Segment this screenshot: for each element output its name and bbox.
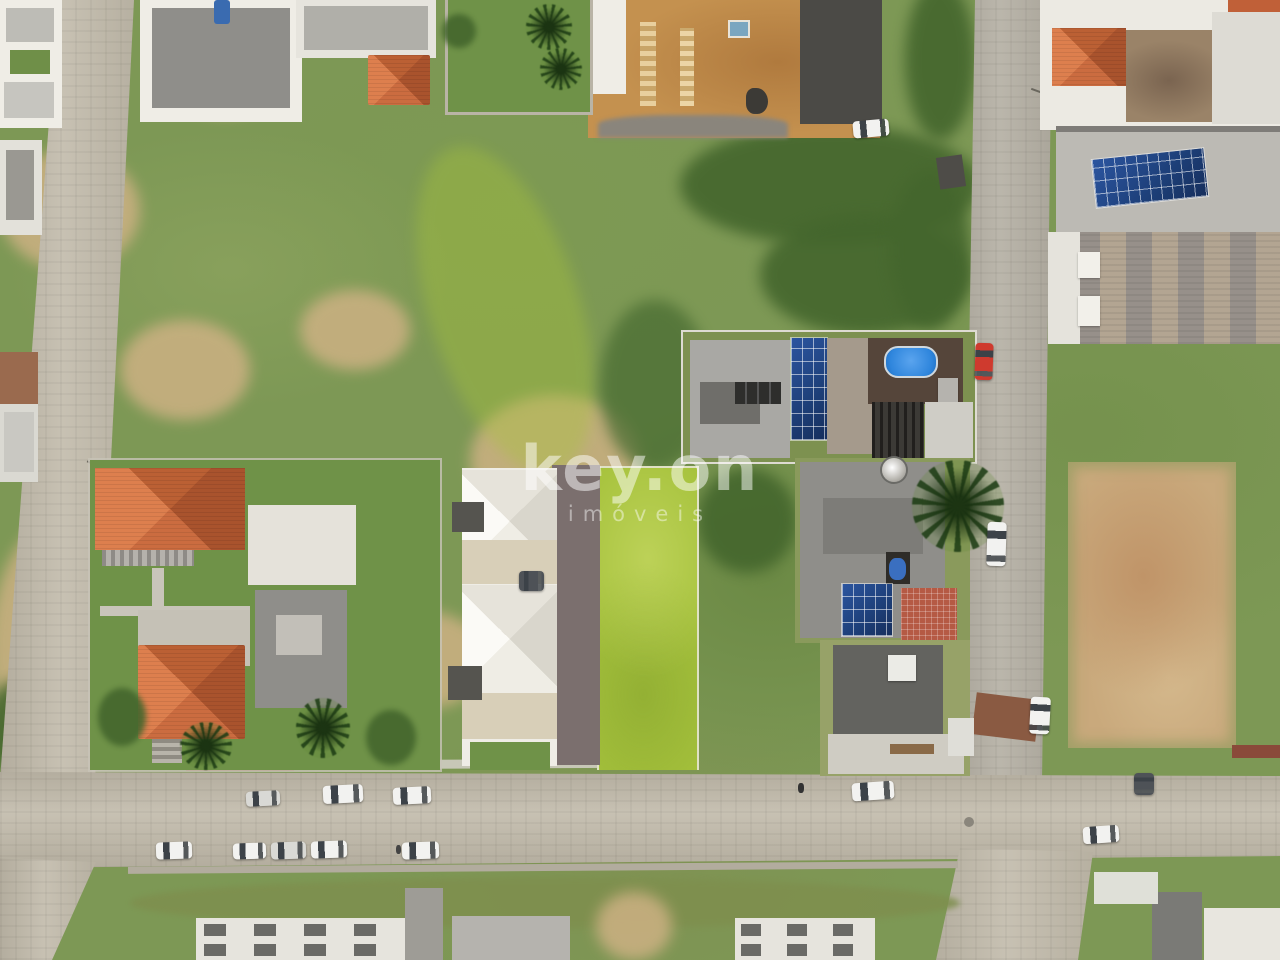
car: [852, 118, 889, 138]
aerial-photo: key.on imóveis: [0, 0, 1280, 960]
car: [393, 786, 432, 805]
car: [156, 841, 193, 859]
car: [1029, 697, 1051, 735]
car: [974, 343, 993, 381]
car: [271, 841, 307, 859]
car: [246, 790, 281, 807]
car: [519, 571, 544, 591]
cars-layer: [0, 0, 1280, 960]
car: [1082, 825, 1119, 844]
car: [402, 841, 440, 859]
car: [233, 842, 267, 859]
car: [986, 522, 1007, 567]
car: [851, 781, 894, 802]
car: [311, 840, 348, 858]
car: [1134, 773, 1154, 795]
car: [323, 784, 364, 804]
